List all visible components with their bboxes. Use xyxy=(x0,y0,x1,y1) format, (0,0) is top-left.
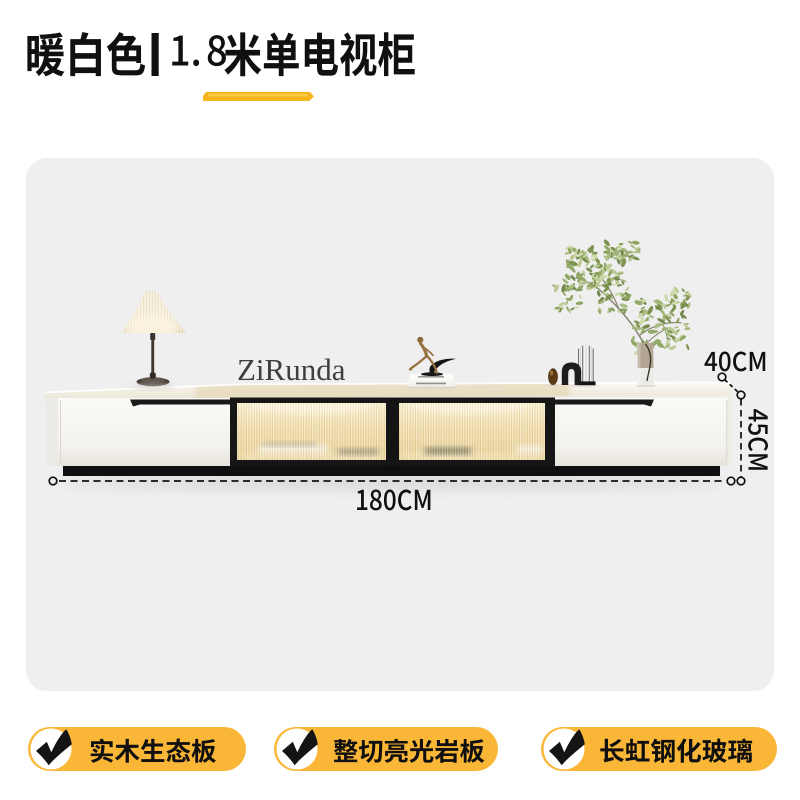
svg-text:ZiRunda: ZiRunda xyxy=(237,352,346,387)
